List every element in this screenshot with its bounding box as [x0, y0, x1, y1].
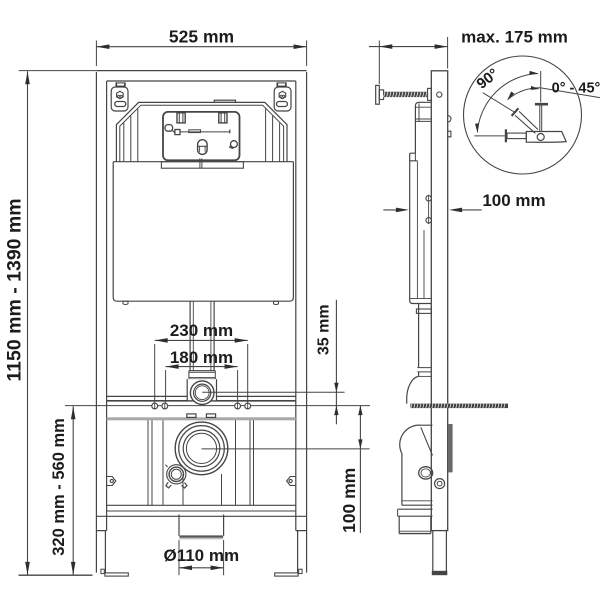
svg-text:180 mm: 180 mm	[170, 348, 233, 367]
svg-text:35 mm: 35 mm	[316, 304, 333, 355]
svg-text:1150 mm - 1390 mm: 1150 mm - 1390 mm	[4, 198, 26, 381]
svg-text:100 mm: 100 mm	[339, 468, 359, 533]
svg-text:max. 175 mm: max. 175 mm	[461, 28, 568, 47]
svg-text:100 mm: 100 mm	[482, 191, 545, 210]
svg-text:0° - 45°: 0° - 45°	[552, 81, 600, 97]
svg-text:Ø110 mm: Ø110 mm	[163, 546, 239, 565]
svg-text:320 mm - 560 mm: 320 mm - 560 mm	[50, 418, 68, 556]
svg-text:525 mm: 525 mm	[169, 27, 234, 47]
svg-text:230 mm: 230 mm	[170, 321, 233, 340]
